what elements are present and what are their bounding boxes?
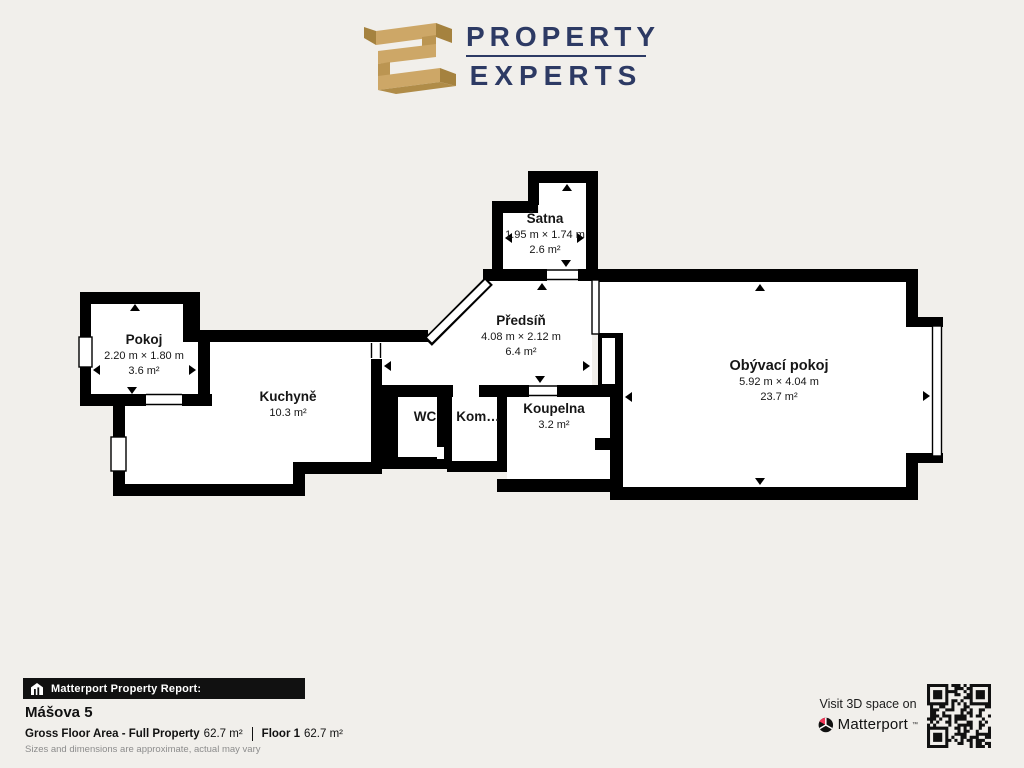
room-label-predsin: Předsíň 4.08 m × 2.12 m 6.4 m²: [481, 313, 561, 360]
gfa-value: 62.7 m²: [204, 728, 243, 740]
room-area: 6.4 m²: [481, 345, 561, 360]
room-label-satna: Šatna 1.95 m × 1.74 m 2.6 m²: [505, 211, 585, 258]
room-area: 23.7 m²: [729, 390, 828, 405]
gfa-label: Gross Floor Area - Full Property: [25, 728, 200, 740]
visit-3d-text: Visit 3D space on: [818, 697, 918, 711]
room-name: Předsíň: [481, 313, 561, 330]
room-label-wc: WC: [414, 409, 437, 426]
room-dims: 5.92 m × 4.04 m: [729, 375, 828, 390]
room-name: Kom…: [456, 409, 500, 426]
room-name: Kuchyně: [259, 389, 316, 406]
room-dims: 1.95 m × 1.74 m: [505, 228, 585, 243]
trademark: ™: [912, 722, 918, 728]
room-label-kuchyne: Kuchyně 10.3 m²: [259, 389, 316, 421]
floorplan-drawing: [0, 0, 1024, 768]
visit-3d-block: Visit 3D space on Matterport™: [818, 697, 918, 733]
room-area: 10.3 m²: [259, 406, 316, 421]
room-area: 3.2 m²: [523, 418, 585, 433]
room-label-komora: Kom…: [456, 409, 500, 426]
matterport-wordmark: Matterport: [838, 716, 908, 733]
room-name: Koupelna: [523, 401, 585, 418]
room-name: Obývací pokoj: [729, 357, 828, 375]
room-area: 3.6 m²: [104, 364, 184, 379]
room-name: Šatna: [505, 211, 585, 228]
room-label-pokoj: Pokoj 2.20 m × 1.80 m 3.6 m²: [104, 332, 184, 379]
room-name: WC: [414, 409, 437, 426]
house-chart-icon: [30, 682, 44, 696]
floor-value: 62.7 m²: [304, 728, 343, 740]
room-dims: 2.20 m × 1.80 m: [104, 349, 184, 364]
room-area: 2.6 m²: [505, 243, 585, 258]
report-bar: Matterport Property Report:: [23, 678, 305, 699]
separator: [252, 727, 253, 741]
disclaimer-text: Sizes and dimensions are approximate, ac…: [25, 744, 261, 755]
property-report-page: PROPERTY EXPERTS: [0, 0, 1024, 768]
matterport-pinwheel-icon: [818, 717, 834, 733]
room-name: Pokoj: [104, 332, 184, 349]
qr-code: [927, 684, 991, 748]
property-name: Mášova 5: [25, 704, 93, 721]
area-summary: Gross Floor Area - Full Property 62.7 m²…: [25, 727, 343, 741]
report-bar-label: Matterport Property Report:: [51, 683, 201, 695]
room-dims: 4.08 m × 2.12 m: [481, 330, 561, 345]
room-label-obyvaci-pokoj: Obývací pokoj 5.92 m × 4.04 m 23.7 m²: [729, 357, 828, 405]
room-label-koupelna: Koupelna 3.2 m²: [523, 401, 585, 433]
floor-label: Floor 1: [262, 728, 300, 740]
matterport-logo: Matterport™: [818, 716, 918, 733]
